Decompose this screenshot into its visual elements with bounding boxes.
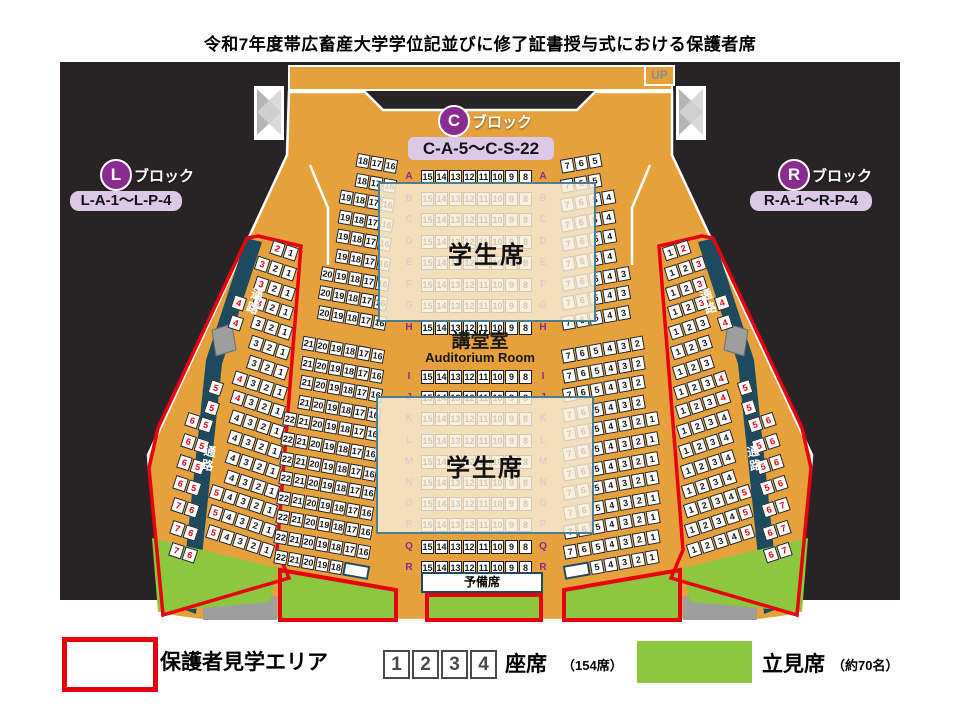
seat-1: 1 [276, 324, 293, 341]
legend-seat-2: 2 [412, 650, 439, 679]
seat-1: 1 [645, 549, 660, 565]
seat-17: 17 [358, 312, 373, 328]
r-block-word: ブロック [812, 165, 872, 186]
left-wing-outer-row: 76 [169, 497, 200, 519]
legend-seat-label: 座席 [505, 648, 547, 678]
seat-6: 6 [576, 541, 591, 557]
seat-2: 2 [631, 414, 646, 430]
seat-20: 20 [307, 456, 322, 472]
seat-21: 21 [296, 414, 311, 430]
seat-5: 5 [587, 153, 602, 169]
center-row-I: I15141312111098I [402, 370, 550, 384]
seating-map: A15141312111098AB15141312111098BC1514131… [60, 62, 900, 625]
seat-1: 1 [282, 244, 299, 261]
seat-7: 7 [775, 520, 792, 537]
seat-6: 6 [182, 524, 199, 541]
seat-4: 4 [602, 288, 617, 304]
seat-5: 5 [589, 559, 604, 575]
seat-18: 18 [351, 212, 366, 228]
hall-name: 講堂室 [430, 326, 530, 353]
seat-17: 17 [361, 273, 376, 289]
seat-5: 5 [737, 379, 754, 396]
seat-19: 19 [315, 556, 330, 572]
seat-6: 6 [760, 412, 777, 429]
seat-3: 3 [696, 334, 713, 351]
seat-13: 13 [449, 370, 462, 384]
row-letter: R [402, 561, 416, 575]
page-title: 令和7年度帯広畜産大学学位記並びに修了証書授与式における保護者席 [0, 30, 960, 55]
seat-5: 5 [589, 362, 604, 378]
row-letter: H [536, 321, 550, 335]
seat-3: 3 [617, 436, 632, 452]
seat-18: 18 [344, 310, 359, 326]
seat-4: 4 [603, 419, 618, 435]
c-block-icon: C [438, 105, 470, 137]
seat-4: 4 [602, 209, 617, 225]
seat-6: 6 [772, 475, 789, 492]
seat-18: 18 [337, 421, 352, 437]
student-area-overlay-upper: 学生席 [378, 182, 596, 322]
seat-18: 18 [348, 251, 363, 267]
hall-name-en: Auditorium Room [405, 350, 555, 365]
seat-7: 7 [563, 544, 578, 560]
seat-1: 1 [271, 383, 288, 400]
seat-17: 17 [369, 155, 384, 171]
seat-20: 20 [303, 515, 318, 531]
seat-11: 11 [477, 540, 490, 554]
seat-1: 1 [645, 509, 660, 525]
right-wing-outer-row: 5 [740, 399, 758, 417]
row-letter: Q [402, 540, 416, 554]
seat-3: 3 [618, 514, 633, 530]
center-row-Q: Q15141312111098Q [402, 540, 550, 554]
r-block-range: R-A-1〜R-P-4 [750, 191, 872, 211]
seat-4: 4 [604, 517, 619, 533]
seat-3: 3 [617, 416, 632, 432]
seat-4: 4 [604, 536, 619, 552]
seat-18: 18 [330, 519, 345, 535]
seat-6: 6 [764, 433, 781, 450]
seat-2: 2 [631, 551, 646, 567]
seat-16: 16 [369, 367, 384, 383]
seat-4: 4 [601, 190, 616, 206]
seat-2: 2 [631, 434, 646, 450]
seat-4: 4 [716, 409, 733, 426]
seat-5: 5 [203, 399, 220, 416]
seat-5: 5 [207, 379, 224, 396]
seat-3: 3 [617, 397, 632, 413]
right-wing-outer-row: 56 [758, 475, 789, 497]
seat-4: 4 [602, 229, 617, 245]
seat-3: 3 [616, 305, 631, 321]
seat-4: 4 [603, 438, 618, 454]
seat-17: 17 [362, 253, 377, 269]
seat-6: 6 [768, 454, 785, 471]
legend-seat-sample: 1234 [383, 650, 499, 679]
student-area-label-upper: 学生席 [448, 235, 526, 270]
left-wing-outer-row: 4 [227, 314, 245, 332]
seat-6: 6 [181, 546, 198, 563]
blank-seat [563, 561, 591, 579]
seat-18: 18 [347, 271, 362, 287]
right-wing-outer-row: 67 [760, 497, 791, 519]
seat-20: 20 [317, 305, 332, 321]
seat-14: 14 [435, 540, 448, 554]
seat-16: 16 [370, 348, 385, 364]
seat-16: 16 [361, 485, 376, 501]
seat-4: 4 [604, 497, 619, 513]
legend-seat-4: 4 [470, 650, 497, 679]
seat-2: 2 [675, 240, 692, 257]
seat-16: 16 [358, 524, 373, 540]
c-block-range: C-A-5〜C-S-22 [408, 137, 554, 160]
legend-seat-3: 3 [441, 650, 468, 679]
left-wing-outer-row: 65 [183, 412, 214, 434]
seat-6: 6 [575, 365, 590, 381]
seat-18: 18 [341, 363, 356, 379]
seat-20: 20 [305, 475, 320, 491]
blank-seat [342, 561, 370, 579]
seat-4: 4 [713, 370, 730, 387]
left-wing-outer-row: 5 [203, 399, 221, 417]
seat-5: 5 [737, 504, 754, 521]
legend-guardian-area-label: 保護者見学エリア [160, 646, 328, 676]
seat-1: 1 [645, 529, 660, 545]
seat-5: 5 [197, 416, 214, 433]
seat-19: 19 [326, 380, 341, 396]
legend-seat-1: 1 [383, 650, 410, 679]
left-wing-row: 21 [268, 240, 299, 262]
legend-seat-count: （154席） [562, 655, 623, 674]
seat-5: 5 [739, 524, 756, 541]
row-letter: Q [536, 540, 550, 554]
c-block-word: ブロック [472, 111, 532, 132]
seat-21: 21 [287, 551, 302, 567]
seat-12: 12 [463, 540, 476, 554]
l-block-word: ブロック [134, 165, 194, 186]
seat-6: 6 [574, 155, 589, 171]
seat-11: 11 [477, 370, 490, 384]
seat-4: 4 [227, 314, 244, 331]
seat-22: 22 [275, 510, 290, 526]
seat-8: 8 [519, 540, 532, 554]
seat-1: 1 [645, 470, 660, 486]
seat-19: 19 [321, 458, 336, 474]
seat-18: 18 [355, 153, 370, 169]
seat-5: 5 [741, 399, 758, 416]
seat-19: 19 [337, 209, 352, 225]
right-wing-outer-row: 67 [761, 520, 792, 542]
seat-7: 7 [774, 497, 791, 514]
seat-7: 7 [560, 158, 575, 174]
seat-21: 21 [292, 473, 307, 489]
legend-standing-count: （約70名） [832, 655, 898, 674]
left-wing-outer-row: 5 [207, 379, 225, 397]
seat-22: 22 [278, 470, 293, 486]
row-letter: I [402, 370, 416, 384]
seat-2: 2 [631, 394, 646, 410]
seat-15: 15 [421, 370, 434, 384]
seat-22: 22 [279, 451, 294, 467]
seat-1: 1 [645, 451, 660, 467]
seat-3: 3 [616, 266, 631, 282]
seat-18: 18 [340, 382, 355, 398]
seat-19: 19 [330, 307, 345, 323]
seat-21: 21 [300, 355, 315, 371]
left-wing-outer-row: 65 [171, 475, 202, 497]
seat-20: 20 [314, 358, 329, 374]
seat-4: 4 [603, 380, 618, 396]
legend-standing-swatch [637, 641, 752, 683]
seat-5: 5 [185, 479, 202, 496]
seat-14: 14 [435, 370, 448, 384]
seat-2: 2 [630, 375, 645, 391]
l-block-range: L-A-1〜L-P-4 [70, 191, 182, 211]
seat-17: 17 [351, 424, 366, 440]
student-area-label-lower: 学生席 [446, 448, 524, 483]
seat-4: 4 [603, 556, 618, 572]
seat-3: 3 [695, 315, 712, 332]
seat-3: 3 [617, 377, 632, 393]
up-stairs-label: UP [644, 65, 675, 86]
seat-21: 21 [299, 375, 314, 391]
r-block-icon: R [778, 159, 810, 191]
left-wing-outer-row: 76 [168, 520, 199, 542]
seat-20: 20 [301, 554, 316, 570]
seat-4: 4 [602, 268, 617, 284]
left-wing-outer-row: 76 [167, 542, 198, 564]
l-block-icon: L [100, 159, 132, 191]
right-wing-outer-row: 56 [746, 412, 777, 434]
seat-5: 5 [590, 539, 605, 555]
seat-1: 1 [645, 490, 660, 506]
seat-10: 10 [491, 540, 504, 554]
seat-18: 18 [328, 559, 343, 575]
seat-4: 4 [721, 469, 738, 486]
reserve-seats-box: 予備席 [421, 572, 543, 593]
seat-1: 1 [273, 363, 290, 380]
seat-22: 22 [273, 549, 288, 565]
seat-18: 18 [334, 461, 349, 477]
seat-3: 3 [617, 495, 632, 511]
seat-21: 21 [289, 512, 304, 528]
row-letter: I [536, 370, 550, 384]
seat-4: 4 [603, 360, 618, 376]
seat-19: 19 [319, 478, 334, 494]
seat-19: 19 [328, 360, 343, 376]
row-letter: H [402, 321, 416, 335]
seat-9: 9 [505, 540, 518, 554]
seat-6: 6 [183, 501, 200, 518]
seat-1: 1 [274, 343, 291, 360]
legend-guardian-area-swatch [62, 637, 158, 692]
seat-2: 2 [631, 492, 646, 508]
seat-17: 17 [348, 463, 363, 479]
seat-2: 2 [630, 355, 645, 371]
seat-1: 1 [278, 304, 295, 321]
seat-19: 19 [323, 419, 338, 435]
seat-16: 16 [356, 544, 371, 560]
seat-2: 2 [631, 512, 646, 528]
seat-16: 16 [383, 158, 398, 174]
seat-20: 20 [319, 266, 334, 282]
seat-16: 16 [359, 505, 374, 521]
seat-3: 3 [618, 534, 633, 550]
seat-19: 19 [316, 517, 331, 533]
seat-4: 4 [602, 307, 617, 323]
seat-18: 18 [354, 173, 369, 189]
seat-7: 7 [776, 542, 793, 559]
seat-18: 18 [333, 480, 348, 496]
seat-19: 19 [333, 268, 348, 284]
seat-17: 17 [354, 385, 369, 401]
seat-3: 3 [616, 358, 631, 374]
seat-3: 3 [617, 554, 632, 570]
seat-20: 20 [310, 417, 325, 433]
right-wing-outer-row: 4 [716, 314, 734, 332]
seat-17: 17 [355, 365, 370, 381]
right-wing-outer-row: 67 [762, 542, 793, 564]
seat-15: 15 [421, 540, 434, 554]
seat-2: 2 [630, 336, 645, 352]
seat-12: 12 [463, 370, 476, 384]
seat-19: 19 [335, 249, 350, 265]
right-wing-row: 12 [661, 240, 692, 262]
seat-17: 17 [344, 522, 359, 538]
legend-standing-label: 立見席 [762, 648, 825, 678]
seat-9: 9 [505, 370, 518, 384]
seat-21: 21 [293, 453, 308, 469]
right-column-row: 765 [559, 153, 603, 174]
seat-4: 4 [603, 399, 618, 415]
left-column-row: 181716 [354, 153, 398, 174]
seat-4: 4 [718, 429, 735, 446]
seat-1: 1 [644, 411, 659, 427]
seat-1: 1 [645, 431, 660, 447]
seat-7: 7 [561, 367, 576, 383]
seat-16: 16 [362, 465, 377, 481]
student-area-overlay-lower: 学生席 [376, 396, 594, 534]
seat-4: 4 [602, 248, 617, 264]
seat-1: 1 [281, 264, 298, 281]
seat-4: 4 [717, 314, 734, 331]
seat-13: 13 [449, 540, 462, 554]
seat-10: 10 [491, 370, 504, 384]
right-wing-outer-row: 5 [736, 379, 754, 397]
seat-20: 20 [312, 377, 327, 393]
seat-8: 8 [519, 370, 532, 384]
seat-1: 1 [279, 284, 296, 301]
seat-17: 17 [347, 483, 362, 499]
seat-3: 3 [616, 285, 631, 301]
seat-2: 2 [632, 532, 647, 548]
